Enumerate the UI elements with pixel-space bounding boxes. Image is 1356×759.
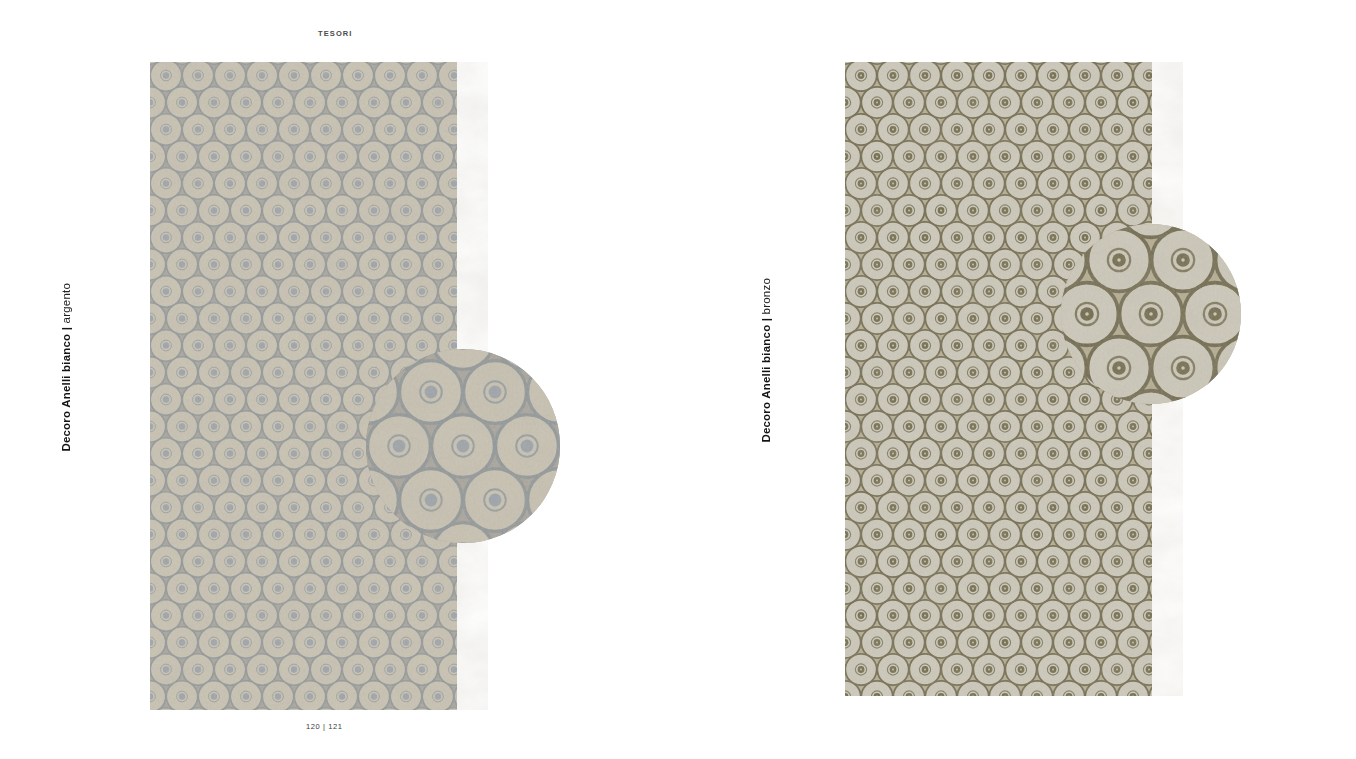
panel-anelli-bronzo — [845, 62, 1245, 696]
product-finish: argento — [60, 283, 72, 323]
label-separator: | — [60, 327, 72, 330]
panel-anelli-argento — [150, 62, 565, 710]
catalog-page: TESORI Decoro Anelli bianco | argento — [0, 0, 1356, 759]
zoom-callout — [1061, 224, 1241, 404]
page-numbers: 120 | 121 — [306, 722, 343, 731]
zoom-callout — [366, 349, 560, 543]
product-name: Decoro Anelli bianco — [60, 334, 72, 452]
product-finish: bronzo — [760, 278, 772, 314]
product-label-argento: Decoro Anelli bianco | argento — [60, 283, 73, 452]
product-name: Decoro Anelli bianco — [760, 325, 772, 443]
label-separator: | — [760, 318, 772, 321]
product-label-bronzo: Decoro Anelli bianco | bronzo — [760, 278, 773, 443]
collection-title: TESORI — [318, 29, 353, 38]
